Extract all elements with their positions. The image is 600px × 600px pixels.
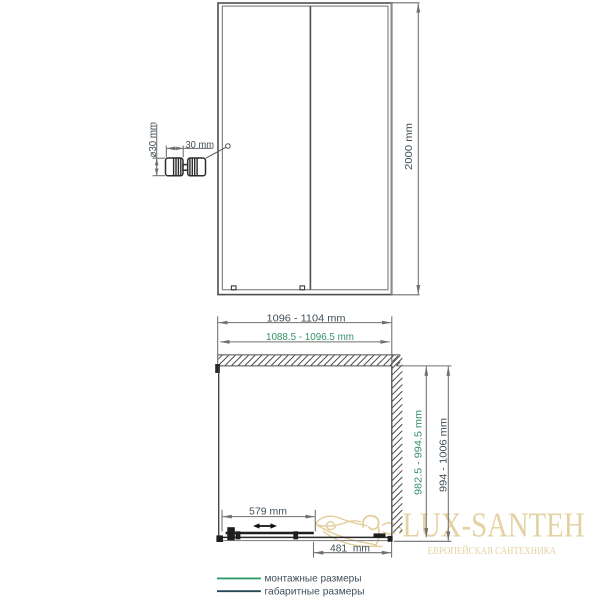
svg-text:ЕВРОПЕЙСКАЯ САНТЕХНИКА: ЕВРОПЕЙСКАЯ САНТЕХНИКА bbox=[428, 545, 557, 557]
svg-text:1096 - 1104 mm: 1096 - 1104 mm bbox=[267, 312, 346, 324]
svg-text:монтажные размеры: монтажные размеры bbox=[265, 572, 362, 584]
svg-text:2000 mm: 2000 mm bbox=[403, 123, 415, 170]
svg-text:579 mm: 579 mm bbox=[249, 506, 287, 518]
svg-text:габаритные размеры: габаритные размеры bbox=[265, 586, 365, 598]
svg-text:⌀30 mm: ⌀30 mm bbox=[147, 122, 159, 158]
svg-text:30 mm: 30 mm bbox=[186, 139, 215, 151]
svg-text:LUX-SANTEH: LUX-SANTEH bbox=[403, 507, 585, 545]
svg-text:1088.5 - 1096.5 mm: 1088.5 - 1096.5 mm bbox=[266, 331, 354, 343]
svg-text:481 mm: 481 mm bbox=[330, 542, 370, 554]
svg-text:994 - 1006 mm: 994 - 1006 mm bbox=[438, 418, 450, 492]
svg-text:982.5 - 994.5 mm: 982.5 - 994.5 mm bbox=[412, 410, 424, 495]
